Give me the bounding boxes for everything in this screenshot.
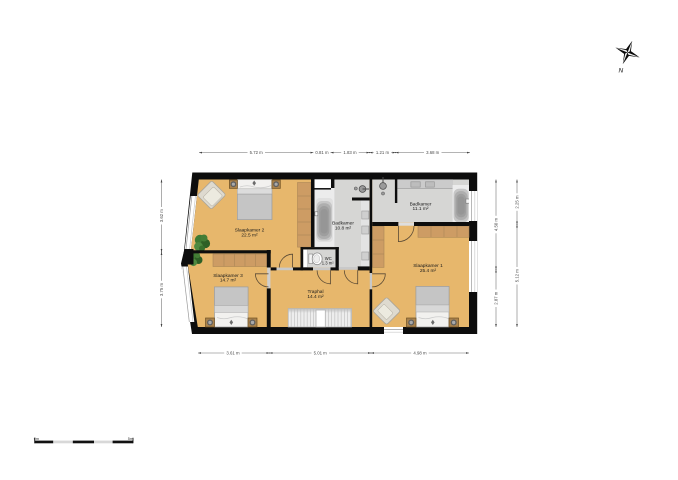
- svg-text:3.62 m: 3.62 m: [159, 209, 164, 223]
- svg-text:5.72 m: 5.72 m: [250, 150, 264, 155]
- svg-text:2.25 m: 2.25 m: [515, 195, 520, 209]
- svg-text:5.12 m: 5.12 m: [515, 269, 520, 283]
- svg-text:5.01 m: 5.01 m: [314, 351, 328, 356]
- svg-text:3.75 m: 3.75 m: [159, 283, 164, 297]
- svg-text:1.83 m: 1.83 m: [343, 150, 357, 155]
- svg-text:4.50 m: 4.50 m: [494, 218, 499, 232]
- svg-text:25.4 m²: 25.4 m²: [420, 268, 437, 274]
- svg-text:22.5 m²: 22.5 m²: [241, 233, 258, 239]
- svg-text:4.98 m: 4.98 m: [413, 351, 427, 356]
- svg-text:2.87 m: 2.87 m: [494, 291, 499, 305]
- svg-text:14.7 m²: 14.7 m²: [220, 278, 237, 284]
- svg-text:3.68 m: 3.68 m: [426, 150, 440, 155]
- svg-text:0.81 m: 0.81 m: [315, 150, 329, 155]
- svg-text:N: N: [619, 68, 624, 75]
- svg-text:11.1 m²: 11.1 m²: [413, 206, 429, 212]
- svg-text:3.61 m: 3.61 m: [226, 351, 240, 356]
- svg-text:1.3 m²: 1.3 m²: [322, 260, 334, 265]
- svg-text:14.4 m²: 14.4 m²: [307, 294, 324, 300]
- svg-text:5m: 5m: [128, 437, 133, 441]
- svg-text:0m: 0m: [34, 437, 39, 441]
- svg-text:1.21 m: 1.21 m: [376, 150, 390, 155]
- svg-text:10.8 m²: 10.8 m²: [335, 225, 352, 231]
